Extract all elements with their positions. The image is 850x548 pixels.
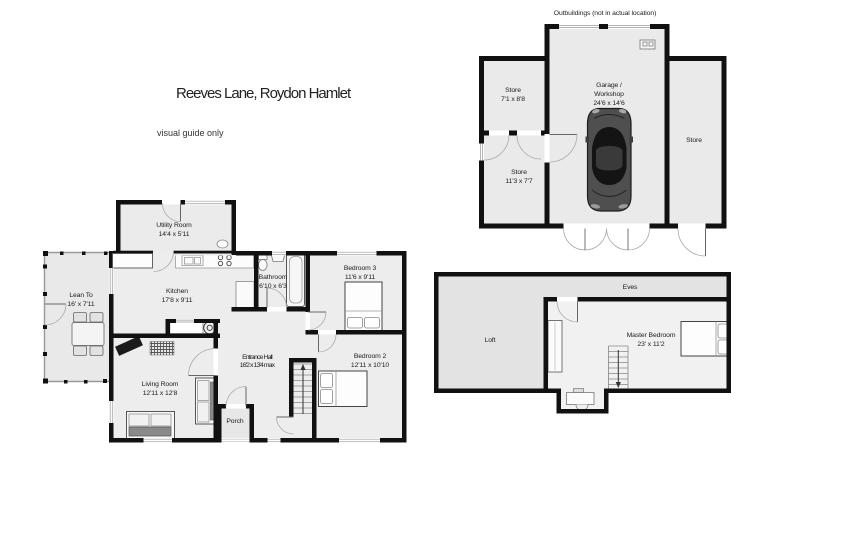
svg-text:Lean To: Lean To [69, 292, 93, 299]
svg-text:Bathroom: Bathroom [259, 274, 288, 281]
svg-text:Entrance Hall: Entrance Hall [242, 354, 273, 361]
svg-text:12'11 x 10'10: 12'11 x 10'10 [351, 362, 390, 369]
svg-text:16' x 7'11: 16' x 7'11 [67, 301, 94, 308]
svg-text:6'10 x 6'3: 6'10 x 6'3 [259, 283, 287, 290]
svg-text:11'3 x 7'7: 11'3 x 7'7 [505, 178, 532, 185]
svg-text:16'2 x 13'4 max: 16'2 x 13'4 max [240, 362, 276, 369]
svg-text:14'4 x 5'11: 14'4 x 5'11 [159, 231, 190, 238]
svg-text:Eves: Eves [623, 284, 638, 291]
svg-text:Store: Store [686, 137, 702, 144]
svg-text:Workshop: Workshop [594, 91, 624, 98]
svg-text:23' x 11'2: 23' x 11'2 [637, 341, 664, 348]
svg-text:12'11 x 12'8: 12'11 x 12'8 [143, 390, 178, 397]
svg-text:Bedroom 3: Bedroom 3 [344, 265, 377, 272]
svg-text:Kitchen: Kitchen [166, 288, 188, 295]
svg-text:Utility Room: Utility Room [156, 222, 192, 229]
svg-text:Outbuildings (not in actual lo: Outbuildings (not in actual location) [554, 10, 656, 17]
svg-text:Porch: Porch [226, 418, 244, 425]
svg-text:Master Bedroom: Master Bedroom [627, 332, 676, 339]
svg-text:Bedroom 2: Bedroom 2 [354, 353, 387, 360]
svg-text:Living Room: Living Room [142, 381, 179, 388]
svg-text:Store: Store [505, 87, 521, 94]
svg-text:7'1 x 8'8: 7'1 x 8'8 [501, 96, 525, 103]
svg-text:Store: Store [511, 169, 527, 176]
svg-text:17'8 x 9'11: 17'8 x 9'11 [162, 297, 193, 304]
svg-text:Garage /: Garage / [596, 82, 622, 89]
svg-text:11'6 x 9'11: 11'6 x 9'11 [345, 274, 376, 281]
svg-text:visual guide only: visual guide only [157, 128, 224, 138]
svg-text:Loft: Loft [485, 337, 496, 344]
svg-text:24'6 x 14'6: 24'6 x 14'6 [593, 100, 625, 107]
svg-text:Reeves Lane, Roydon Hamlet: Reeves Lane, Roydon Hamlet [176, 85, 352, 102]
